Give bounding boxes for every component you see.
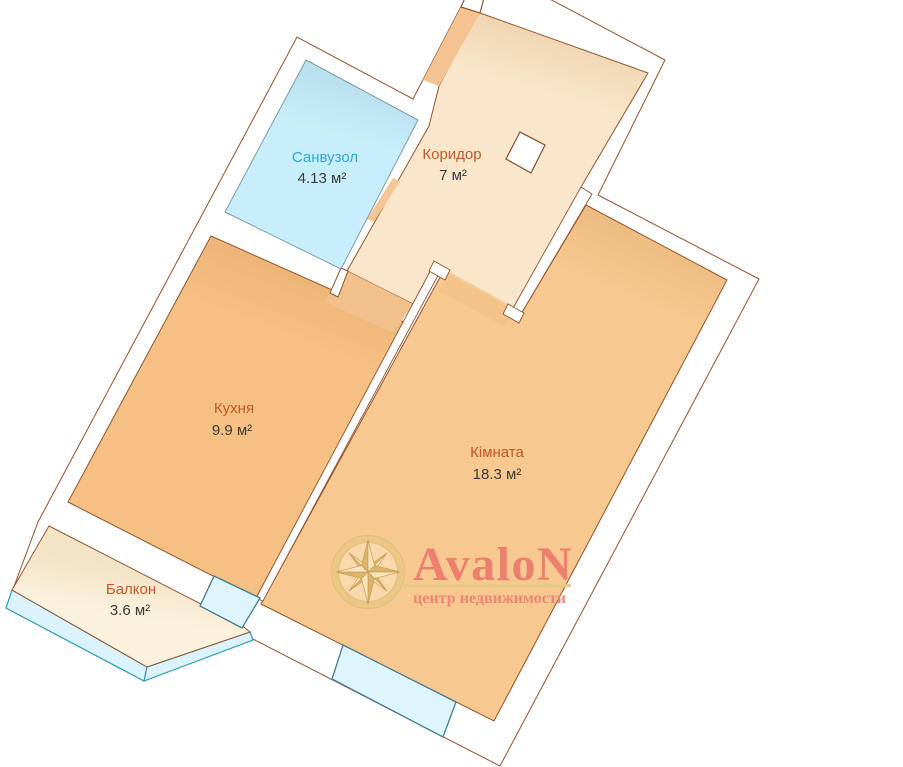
svg-text:центр недвижимости: центр недвижимости: [413, 590, 566, 607]
svg-text:Балкон: Балкон: [106, 581, 156, 598]
svg-text:AvaloN: AvaloN: [413, 538, 573, 591]
svg-text:3.6 м²: 3.6 м²: [110, 602, 150, 619]
svg-text:Коридор: Коридор: [422, 146, 481, 163]
svg-text:Кухня: Кухня: [214, 400, 254, 417]
svg-text:7 м²: 7 м²: [439, 167, 467, 184]
svg-text:Санвузол: Санвузол: [292, 149, 358, 166]
svg-text:4.13 м²: 4.13 м²: [298, 170, 347, 187]
svg-text:18.3 м²: 18.3 м²: [473, 466, 522, 483]
svg-text:9.9 м²: 9.9 м²: [212, 422, 252, 439]
svg-text:Кімната: Кімната: [470, 444, 524, 461]
